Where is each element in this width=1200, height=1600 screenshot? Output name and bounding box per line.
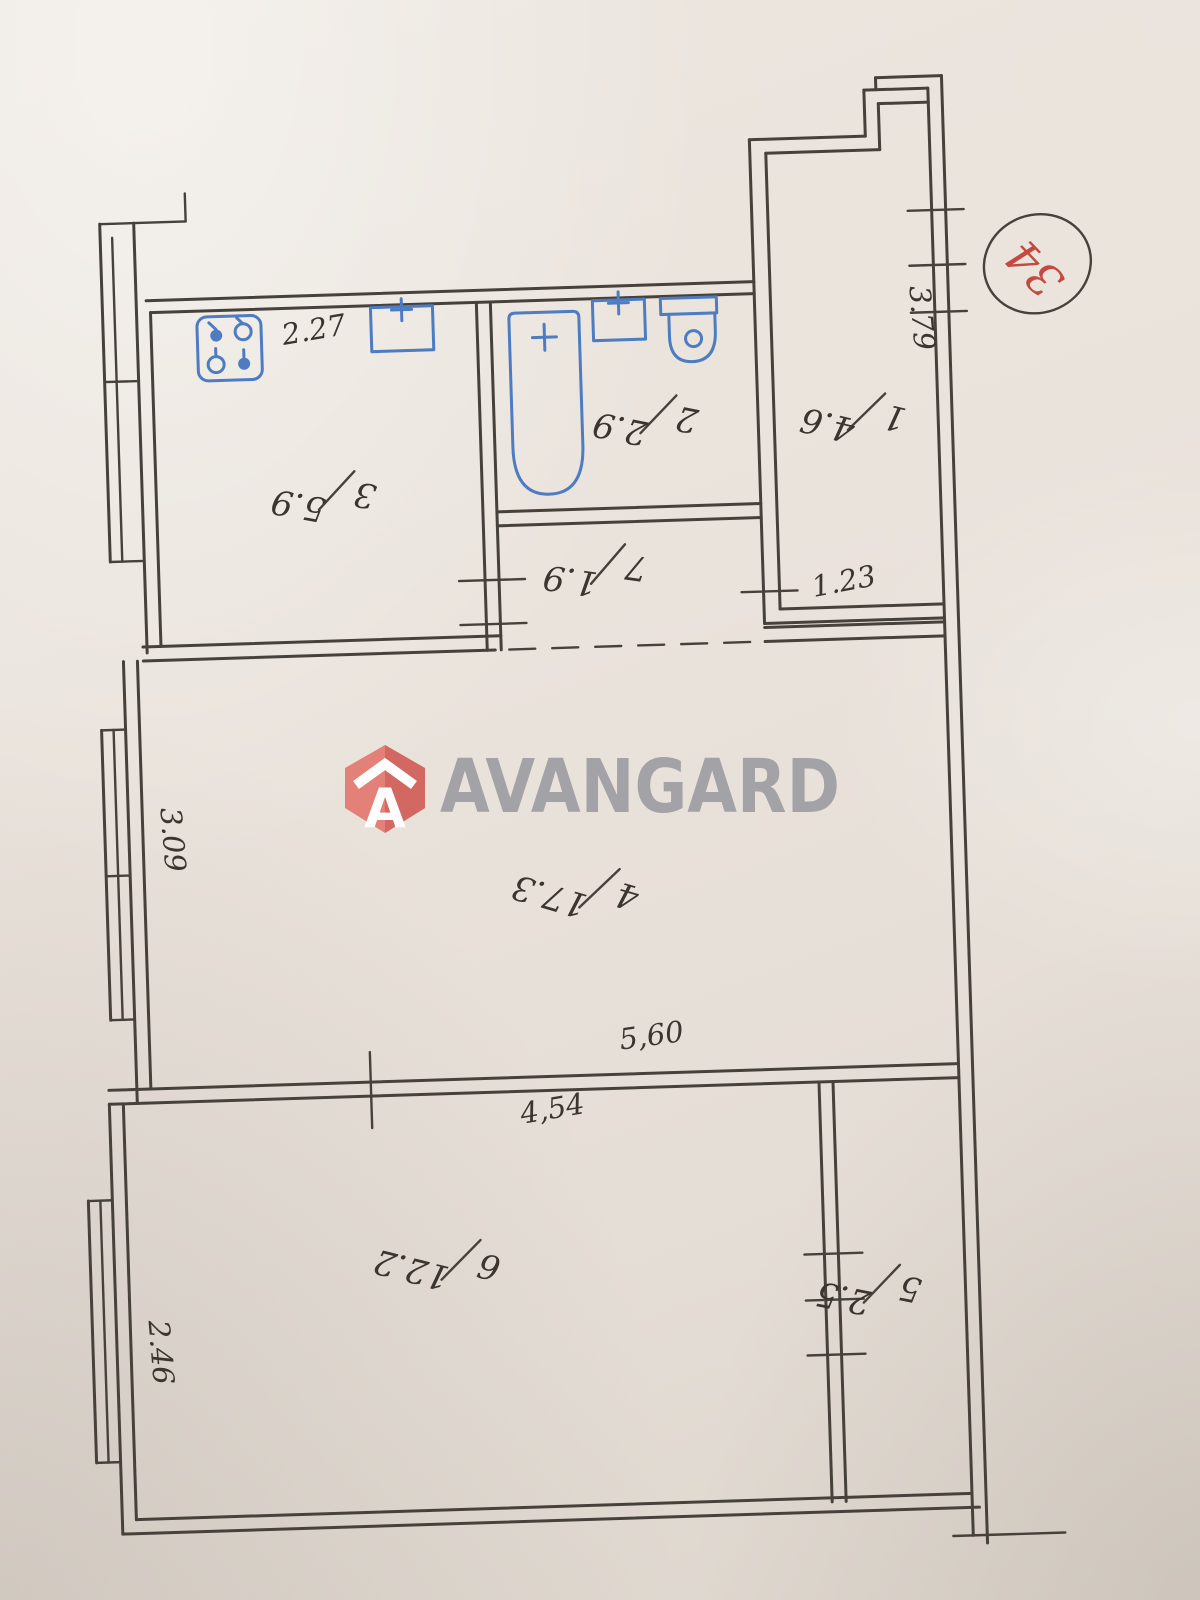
watermark: A AVANGARD — [345, 744, 840, 840]
room-6-label: 6 12.2 — [370, 1216, 506, 1309]
wall-left-living — [99, 661, 151, 1104]
dimension-bedroom-top: 4,54 — [517, 1086, 587, 1131]
floor-plan-photo: 1 4.6 2 2.9 3 5.9 4 17.3 5 2.5 6 12.2 — [0, 0, 1200, 1600]
apartment-number-stamp: 34 — [969, 198, 1106, 329]
living-window — [102, 730, 135, 1021]
stove-icon — [197, 315, 263, 381]
wall-left-kitchen — [99, 193, 199, 653]
room-5-area: 2.5 — [813, 1273, 875, 1323]
door-tick — [460, 623, 526, 625]
room-2-number: 2 — [672, 397, 702, 441]
door-tick — [808, 1354, 866, 1356]
logo-letter: A — [364, 777, 406, 840]
wall-bottom — [122, 1493, 979, 1534]
room-7-area: 1.9 — [541, 556, 600, 603]
room-7-label: 7 1.9 — [541, 533, 651, 610]
room-1-number: 1 — [880, 395, 910, 439]
watermark-brand-text: AVANGARD — [440, 744, 840, 830]
room-2-label: 2 2.9 — [590, 381, 703, 463]
bathroom-fixtures — [508, 289, 722, 495]
room-1-label: 1 4.6 — [797, 376, 910, 461]
room-4-label: 4 17.3 — [508, 842, 646, 939]
hall-opening-dashed — [509, 642, 755, 650]
room-4-area: 17.3 — [508, 866, 592, 926]
room-5-number: 5 — [896, 1267, 925, 1310]
dimension-bedroom-left: 2.46 — [141, 1318, 180, 1386]
room-3-area: 5.9 — [268, 480, 328, 529]
bathtub-icon — [509, 311, 585, 495]
balcony-walls — [749, 134, 944, 623]
avangard-logo-icon: A — [345, 745, 425, 840]
room-2-area: 2.9 — [590, 403, 652, 453]
wall-kitchen-bath-divider — [450, 301, 527, 651]
dimension-living-bottom: 5,60 — [617, 1014, 686, 1056]
room-3-number: 3 — [351, 473, 379, 516]
room-5-label: 5 2.5 — [813, 1250, 925, 1332]
dimension-balcony-bottom: 1.23 — [809, 558, 879, 603]
wall-left-bedroom — [85, 1104, 136, 1535]
dimension-kitchen-top: 2.27 — [278, 307, 349, 352]
room-6-area: 12.2 — [370, 1240, 453, 1297]
door-tick — [370, 1052, 372, 1128]
stamp-number: 34 — [995, 229, 1074, 309]
wall-top-step — [863, 76, 943, 150]
wall-living-top — [143, 622, 945, 661]
dimension-living-left: 3.09 — [153, 806, 192, 873]
door-tick — [742, 590, 798, 592]
room-7-number: 7 — [623, 546, 650, 589]
room-1-area: 4.6 — [797, 399, 860, 451]
door-tick — [804, 1253, 862, 1255]
room-6-number: 6 — [474, 1244, 505, 1288]
room-3-label: 3 5.9 — [268, 458, 379, 538]
room-4-number: 4 — [611, 873, 644, 918]
wall-end-tick — [953, 1532, 1065, 1536]
dimension-balcony-right: 3.79 — [902, 284, 941, 351]
toilet-icon — [660, 297, 718, 363]
door-tick — [459, 579, 525, 581]
